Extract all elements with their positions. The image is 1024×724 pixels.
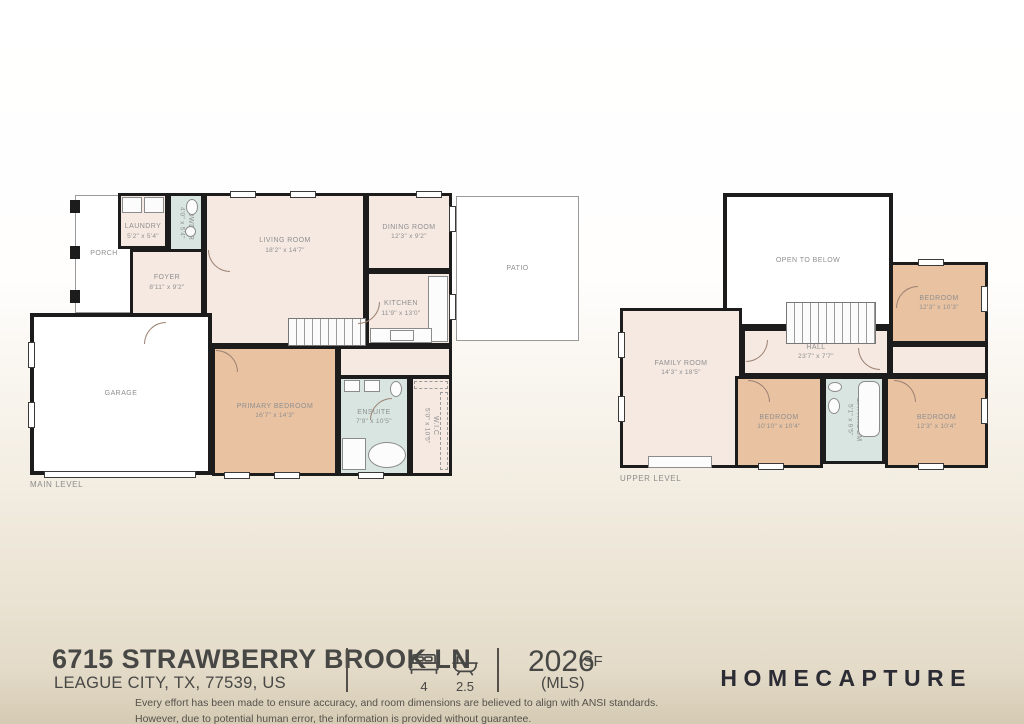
room-name: LIVING ROOM: [259, 236, 311, 246]
disclaimer-line2: However, due to potential human error, t…: [135, 712, 658, 724]
room-dims: 4'0" x 5'4": [177, 206, 185, 240]
room-dining: DINING ROOM 12'3" x 9'2": [366, 193, 452, 271]
homecapture-logo: HOMECAPTURE: [720, 665, 972, 692]
window: [416, 191, 442, 198]
room-name: LAUNDRY: [125, 222, 161, 232]
level-caption-main: MAIN LEVEL: [30, 480, 83, 489]
staircase: [288, 318, 366, 346]
beds-count: 4: [402, 679, 446, 694]
sink-icon: [828, 382, 842, 392]
room-name: GARAGE: [105, 389, 138, 399]
room-name: W.I.C: [431, 408, 440, 444]
upper-level-plan: OPEN TO BELOW BEDROOM 12'3" x 10'3" FAMI…: [618, 190, 992, 490]
window: [230, 191, 256, 198]
window: [618, 332, 625, 358]
room-dims: 23'7" x 7'7": [798, 352, 834, 361]
suite-hall: [338, 346, 452, 378]
address-line2: LEAGUE CITY, TX, 77539, US: [54, 674, 286, 693]
window: [618, 396, 625, 422]
room-name: PRIMARY BEDROOM: [237, 402, 314, 412]
porch-pier: [70, 246, 80, 259]
room-name: DINING ROOM: [382, 223, 435, 233]
room-dims: 12'3" x 9'2": [382, 232, 435, 241]
room-dims: 5'1" x 9'5": [845, 398, 853, 442]
window: [274, 472, 300, 479]
disclaimer: Every effort has been made to ensure acc…: [135, 696, 658, 724]
disclaimer-line1: Every effort has been made to ensure acc…: [135, 696, 658, 712]
baths-count: 2.5: [443, 679, 487, 694]
window: [290, 191, 316, 198]
staircase: [786, 302, 876, 344]
room-name: FOYER: [149, 273, 184, 283]
room-garage: GARAGE: [30, 313, 212, 475]
baths-stat: 2.5: [443, 652, 487, 694]
porch-pier: [70, 290, 80, 303]
vanity-sink-icon: [364, 380, 380, 392]
bed-icon: [408, 652, 440, 676]
room-family: FAMILY ROOM 14'3" x 18'5": [620, 308, 742, 468]
room-name: HALL: [798, 343, 834, 353]
room-dims: 14'3" x 18'5": [655, 368, 708, 377]
square-footage-unit: SF: [583, 653, 603, 670]
toilet-icon: [390, 381, 402, 397]
window: [224, 472, 250, 479]
garage-door: [44, 471, 196, 478]
sink-icon: [185, 226, 196, 237]
room-dims: 12'3" x 10'3": [919, 303, 959, 312]
beds-stat: 4: [402, 652, 446, 694]
level-caption-upper: UPPER LEVEL: [620, 474, 681, 483]
window: [918, 463, 944, 470]
room-name: BEDROOM: [757, 413, 800, 423]
window: [918, 259, 944, 266]
room-name: KITCHEN: [381, 299, 420, 309]
room-dims: 12'3" x 10'4": [917, 422, 957, 431]
vanity-sink-icon: [344, 380, 360, 392]
window: [28, 342, 35, 368]
room-name: FAMILY ROOM: [655, 359, 708, 369]
window: [981, 398, 988, 424]
dryer-icon: [144, 197, 164, 213]
room-dims: 5'0" x 10'5": [422, 408, 430, 444]
room-dims: 18'2" x 14'7": [259, 246, 311, 255]
hall-closet: [890, 344, 988, 376]
room-dims: 16'7" x 14'3": [237, 411, 314, 420]
room-dims: 5'2" x 5'4": [125, 232, 161, 241]
room-patio: PATIO: [456, 196, 579, 341]
stove-icon: [390, 330, 414, 341]
room-dims: 11'9" x 13'0": [381, 309, 420, 318]
window: [758, 463, 784, 470]
bathtub-icon: [858, 381, 880, 437]
room-dims: 10'10" x 10'4": [757, 422, 800, 431]
window: [358, 472, 384, 479]
window: [28, 402, 35, 428]
washer-icon: [122, 197, 142, 213]
footer-divider: [497, 648, 499, 692]
fireplace: [648, 456, 712, 468]
main-level-plan: PORCH PATIO LAUNDRY 5'2" x 5'4" POWDER 4…: [28, 190, 584, 490]
window: [449, 294, 456, 320]
toilet-icon: [186, 199, 198, 215]
window: [981, 286, 988, 312]
porch-pier: [70, 200, 80, 213]
room-dims: 8'11" x 9'2": [149, 283, 184, 292]
footer-divider: [346, 648, 348, 692]
toilet-icon: [828, 398, 840, 414]
room-name: PATIO: [506, 264, 528, 274]
floor-plan-page: PORCH PATIO LAUNDRY 5'2" x 5'4" POWDER 4…: [0, 0, 1024, 724]
room-name: BEDROOM: [917, 413, 957, 423]
room-name: BEDROOM: [919, 294, 959, 304]
closet-shelf: [414, 381, 448, 389]
bathtub-icon: [368, 442, 406, 468]
square-footage-source: (MLS): [541, 675, 585, 693]
window: [449, 206, 456, 232]
shower-icon: [342, 438, 366, 470]
closet-shelf: [440, 392, 448, 470]
room-name: PORCH: [90, 249, 118, 259]
bath-icon: [449, 652, 481, 676]
room-name: OPEN TO BELOW: [776, 256, 840, 266]
